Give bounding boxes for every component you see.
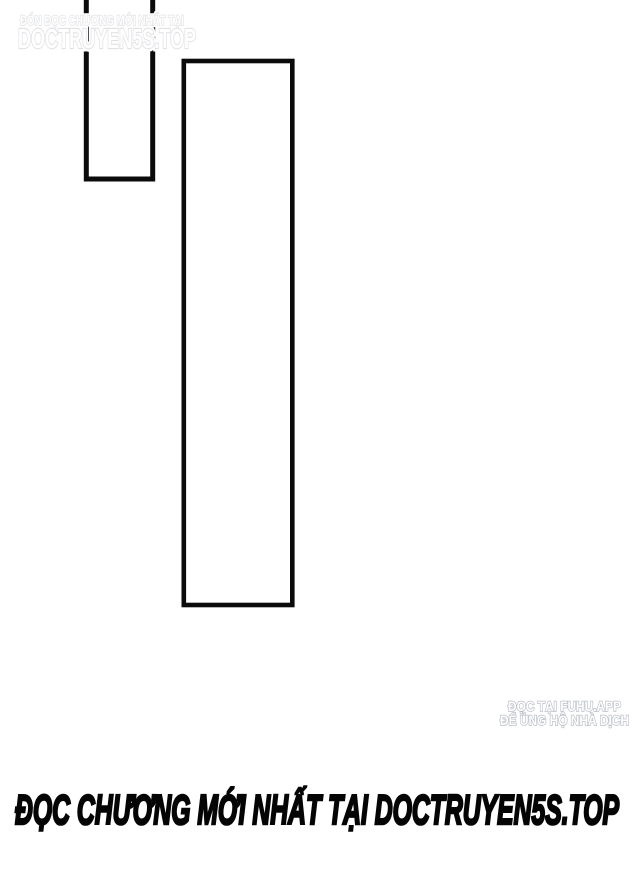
svg-text:DOCTRUYEN5S.TOP: DOCTRUYEN5S.TOP <box>18 23 196 54</box>
svg-text:ĐỌC CHƯƠNG MỚI NHẤT TẠI DOCTRU: ĐỌC CHƯƠNG MỚI NHẤT TẠI DOCTRUYEN5S.TOP <box>15 785 620 833</box>
svg-text:ĐỂ ỦNG HỘ NHÀ DỊCH: ĐỂ ỦNG HỘ NHÀ DỊCH <box>500 711 629 728</box>
